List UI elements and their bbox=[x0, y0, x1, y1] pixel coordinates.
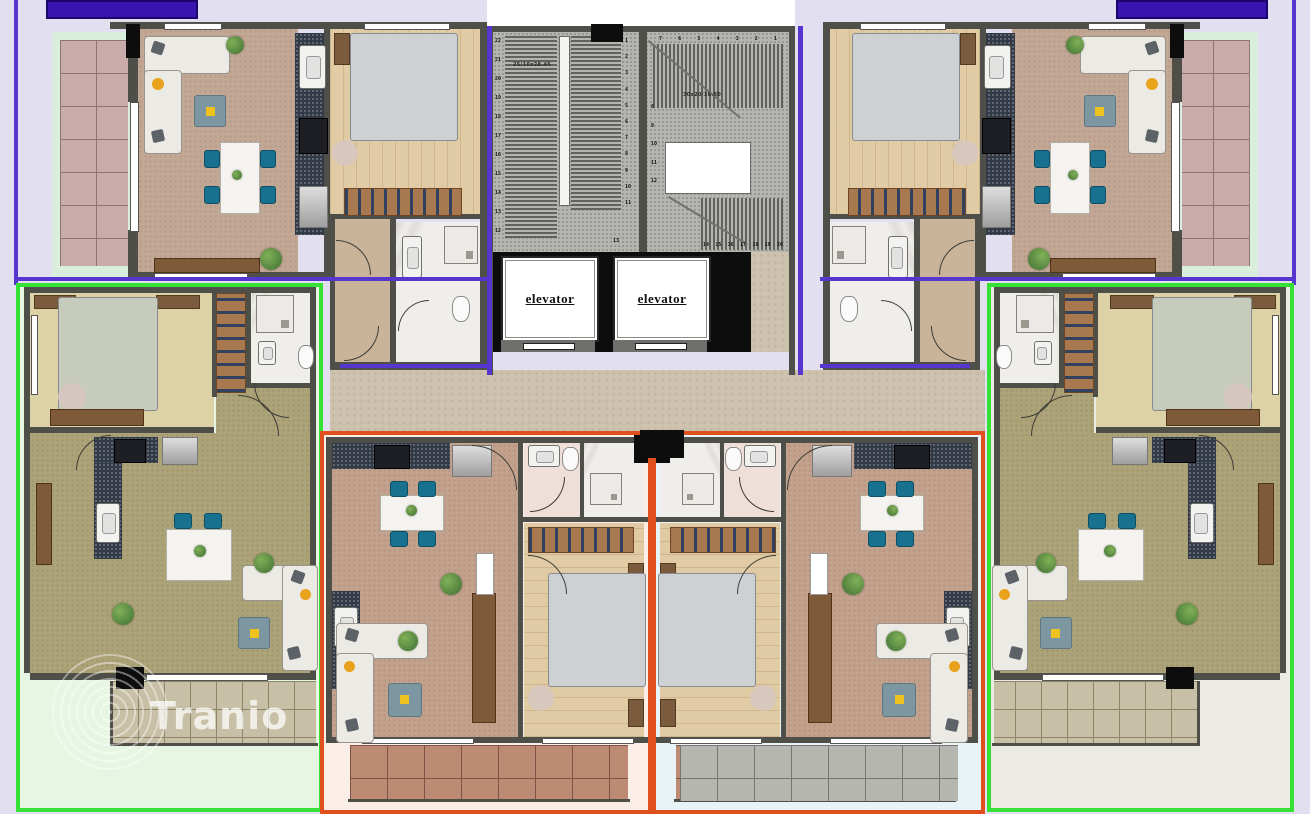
balcony-window bbox=[542, 738, 634, 744]
stove bbox=[374, 445, 410, 469]
step-number: 9 bbox=[625, 168, 635, 174]
shower bbox=[682, 473, 714, 505]
bathroom-sink bbox=[1034, 341, 1052, 365]
throw-pillow bbox=[1146, 78, 1158, 90]
column bbox=[1166, 667, 1194, 689]
window bbox=[1088, 23, 1146, 30]
step-number: 7 bbox=[659, 36, 662, 42]
step-number: 6 bbox=[678, 36, 681, 42]
wardrobe bbox=[344, 188, 462, 216]
wardrobe bbox=[528, 527, 634, 553]
dining-chair bbox=[1088, 513, 1106, 529]
kitchen-sink bbox=[96, 503, 120, 543]
stair-flight-left-inner bbox=[571, 36, 621, 210]
table-plant bbox=[1068, 170, 1078, 180]
step-number: 2 bbox=[755, 36, 758, 42]
dining-chair bbox=[868, 531, 886, 547]
nightstand bbox=[660, 699, 676, 727]
dining-chair bbox=[260, 186, 276, 204]
balcony-window bbox=[1042, 674, 1164, 681]
dining-chair bbox=[204, 150, 220, 168]
step-number: 14 bbox=[495, 190, 504, 196]
dining-chair bbox=[1118, 513, 1136, 529]
step-number: 16 bbox=[495, 152, 504, 158]
step-numbers-left-inner: 1234567891011 bbox=[625, 38, 635, 206]
dining-chair bbox=[418, 481, 436, 497]
plant bbox=[1028, 248, 1050, 270]
corridor bbox=[330, 370, 985, 434]
dining-chair bbox=[1034, 186, 1050, 204]
step-number: 9 bbox=[651, 123, 663, 129]
step-number: 17 bbox=[495, 133, 504, 139]
kitchen-sink bbox=[1190, 503, 1214, 543]
step-number: 13 bbox=[495, 209, 504, 215]
console bbox=[476, 553, 494, 595]
dining-chair bbox=[1034, 150, 1050, 168]
desk bbox=[50, 409, 144, 426]
shelf bbox=[1110, 295, 1154, 309]
toilet bbox=[725, 447, 742, 471]
step-number: 22 bbox=[495, 38, 504, 44]
step-number: 1 bbox=[625, 38, 635, 44]
sideboard bbox=[154, 258, 260, 273]
ottoman bbox=[238, 617, 270, 649]
rug bbox=[58, 383, 86, 411]
step-number: 18 bbox=[495, 114, 504, 120]
shower bbox=[1016, 295, 1054, 333]
balcony-window bbox=[130, 102, 139, 232]
shower bbox=[590, 473, 622, 505]
desk bbox=[1166, 409, 1260, 426]
stove bbox=[894, 445, 930, 469]
step-number-corner: 13 bbox=[613, 238, 623, 244]
rug bbox=[1224, 383, 1252, 411]
stove bbox=[1164, 439, 1196, 463]
stair-spine bbox=[559, 36, 570, 206]
dining-chair bbox=[1090, 150, 1106, 168]
step-number: 10 bbox=[651, 141, 663, 147]
step-number: 4 bbox=[716, 36, 719, 42]
dining-chair bbox=[1090, 186, 1106, 204]
step-number: 15 bbox=[715, 242, 721, 248]
corridor-nook bbox=[751, 252, 789, 352]
step-number: 15 bbox=[495, 171, 504, 177]
elevator-door-handle bbox=[523, 343, 575, 350]
step-number: 14 bbox=[703, 242, 709, 248]
step-numbers-right-top: 7654321 bbox=[659, 36, 777, 42]
outline-purple bbox=[1292, 0, 1296, 285]
tranio-watermark: Tranio bbox=[150, 694, 288, 738]
fridge bbox=[1112, 437, 1148, 465]
column bbox=[126, 24, 140, 58]
bathroom-sink bbox=[888, 236, 908, 278]
step-number: 10 bbox=[625, 184, 635, 190]
stair-dimension-label: 30x20/16.80 bbox=[683, 92, 721, 98]
toilet bbox=[996, 345, 1012, 369]
balcony-window bbox=[1171, 102, 1180, 232]
column bbox=[733, 252, 751, 352]
wardrobe bbox=[1064, 293, 1094, 393]
rug bbox=[952, 140, 978, 166]
console bbox=[810, 553, 828, 595]
plant bbox=[1036, 553, 1056, 573]
plant bbox=[886, 631, 906, 651]
step-number: 3 bbox=[736, 36, 739, 42]
toilet bbox=[298, 345, 314, 369]
dining-chair bbox=[260, 150, 276, 168]
stairwell: 2221201918171615141312 1234567891011 25/… bbox=[487, 0, 795, 375]
table-plant bbox=[232, 170, 242, 180]
balcony-tiles bbox=[1182, 40, 1250, 266]
toilet bbox=[562, 447, 579, 471]
ottoman bbox=[882, 683, 916, 717]
step-number: 4 bbox=[625, 87, 635, 93]
dining-chair bbox=[204, 513, 222, 529]
bathroom-sink bbox=[402, 236, 422, 278]
shower bbox=[444, 226, 478, 264]
window bbox=[364, 23, 450, 30]
stove bbox=[982, 118, 1011, 154]
toilet bbox=[840, 296, 858, 322]
bathroom-sink bbox=[258, 341, 276, 365]
step-number: 2 bbox=[625, 54, 635, 60]
step-number: 19 bbox=[765, 242, 771, 248]
step-number: 11 bbox=[625, 200, 635, 206]
throw-pillow bbox=[344, 661, 355, 672]
stove bbox=[114, 439, 146, 463]
dining-chair bbox=[868, 481, 886, 497]
tv-sideboard bbox=[808, 593, 832, 723]
nightstand bbox=[628, 699, 644, 727]
cushion bbox=[945, 718, 959, 732]
dining-chair bbox=[390, 481, 408, 497]
balcony-window bbox=[362, 738, 474, 744]
window bbox=[1272, 315, 1279, 395]
dining-chair bbox=[418, 531, 436, 547]
throw-pillow bbox=[300, 589, 311, 600]
rug bbox=[528, 685, 554, 711]
step-number: 20 bbox=[495, 76, 504, 82]
table-plant bbox=[406, 505, 417, 516]
dining-chair bbox=[896, 481, 914, 497]
balcony-window bbox=[830, 738, 942, 744]
wardrobe bbox=[848, 188, 966, 216]
floor-plan-canvas: 2221201918171615141312 1234567891011 25/… bbox=[0, 0, 1310, 814]
throw-pillow bbox=[949, 661, 960, 672]
window bbox=[860, 23, 946, 30]
table-plant bbox=[194, 545, 206, 557]
plant bbox=[112, 603, 134, 625]
tv-sideboard bbox=[472, 593, 496, 723]
plant bbox=[842, 573, 864, 595]
bed bbox=[852, 33, 960, 141]
step-number: 1 bbox=[774, 36, 777, 42]
step-number: 3 bbox=[625, 70, 635, 76]
stair-dimension-label: 25/10x28.45 bbox=[513, 62, 551, 68]
plant bbox=[440, 573, 462, 595]
banner-top-right bbox=[1116, 0, 1268, 19]
table-plant bbox=[887, 505, 898, 516]
ottoman bbox=[1084, 95, 1116, 127]
step-number: 12 bbox=[495, 228, 504, 234]
bathroom-sink bbox=[744, 445, 776, 467]
throw-pillow bbox=[152, 78, 164, 90]
step-numbers-right-mid: 89101112 bbox=[651, 104, 663, 184]
step-number: 20 bbox=[777, 242, 783, 248]
throw-pillow bbox=[999, 589, 1010, 600]
step-number: 18 bbox=[752, 242, 758, 248]
fridge bbox=[299, 186, 328, 228]
step-number: 21 bbox=[495, 57, 504, 63]
outline-purple bbox=[340, 364, 490, 368]
balcony-tiles-gray bbox=[680, 745, 958, 801]
step-number: 5 bbox=[697, 36, 700, 42]
sideboard bbox=[1258, 483, 1274, 565]
plant bbox=[254, 553, 274, 573]
dining-chair bbox=[896, 531, 914, 547]
outline-purple bbox=[820, 364, 970, 368]
stove bbox=[299, 118, 328, 154]
dining-chair bbox=[174, 513, 192, 529]
elevator-right: elevator bbox=[613, 256, 711, 342]
balcony-window bbox=[146, 674, 268, 681]
ottoman bbox=[194, 95, 226, 127]
shower bbox=[832, 226, 866, 264]
step-number: 17 bbox=[740, 242, 746, 248]
nightstand bbox=[960, 33, 976, 65]
ottoman bbox=[388, 683, 422, 717]
step-number: 11 bbox=[651, 160, 663, 166]
rug bbox=[332, 140, 358, 166]
banner-top-left bbox=[46, 0, 198, 19]
step-number: 16 bbox=[728, 242, 734, 248]
step-number: 12 bbox=[651, 178, 663, 184]
table-plant bbox=[1104, 545, 1116, 557]
window bbox=[164, 23, 222, 30]
outline-purple bbox=[14, 0, 18, 285]
step-number: 7 bbox=[625, 135, 635, 141]
balcony-tiles bbox=[60, 40, 128, 266]
ottoman bbox=[1040, 617, 1072, 649]
nightstand bbox=[334, 33, 350, 65]
step-number: 6 bbox=[625, 119, 635, 125]
cushion bbox=[151, 129, 165, 143]
column bbox=[591, 24, 623, 42]
plant bbox=[1066, 36, 1084, 54]
column bbox=[640, 430, 684, 458]
shelf bbox=[156, 295, 200, 309]
apartment-bottom-center-left bbox=[322, 433, 652, 812]
outline-purple bbox=[798, 26, 803, 375]
step-number: 8 bbox=[625, 151, 635, 157]
plant bbox=[226, 36, 244, 54]
plant bbox=[398, 631, 418, 651]
step-number: 19 bbox=[495, 95, 504, 101]
rug bbox=[750, 685, 776, 711]
elevator-door-handle bbox=[635, 343, 687, 350]
stair-landing-void bbox=[665, 142, 751, 194]
step-number: 5 bbox=[625, 103, 635, 109]
outline-purple bbox=[820, 277, 1296, 281]
step-numbers-right-bottom: 14151617181920 bbox=[703, 242, 783, 248]
cushion bbox=[1145, 129, 1159, 143]
fridge bbox=[982, 186, 1011, 228]
wardrobe bbox=[670, 527, 776, 553]
fridge bbox=[162, 437, 198, 465]
dining-chair bbox=[204, 186, 220, 204]
apartment-bottom-right bbox=[988, 283, 1294, 812]
balcony-tiles bbox=[350, 745, 628, 801]
outline-purple bbox=[487, 26, 492, 375]
sideboard bbox=[36, 483, 52, 565]
step-number: 8 bbox=[651, 104, 663, 110]
bathroom-sink bbox=[528, 445, 560, 467]
elevator-left: elevator bbox=[501, 256, 599, 342]
toilet bbox=[452, 296, 470, 322]
bed bbox=[350, 33, 458, 141]
plant bbox=[260, 248, 282, 270]
outline-purple bbox=[14, 277, 490, 281]
kitchen-sink bbox=[984, 45, 1011, 89]
step-numbers-left-outer: 2221201918171615141312 bbox=[495, 38, 504, 234]
wardrobe bbox=[216, 293, 246, 393]
shower bbox=[256, 295, 294, 333]
column bbox=[1170, 24, 1184, 58]
sideboard bbox=[1050, 258, 1156, 273]
dining-chair bbox=[390, 531, 408, 547]
balcony-window bbox=[670, 738, 762, 744]
cushion bbox=[345, 718, 359, 732]
kitchen-sink bbox=[299, 45, 326, 89]
window bbox=[31, 315, 38, 395]
plant bbox=[1176, 603, 1198, 625]
balcony-tiles bbox=[994, 681, 1198, 745]
